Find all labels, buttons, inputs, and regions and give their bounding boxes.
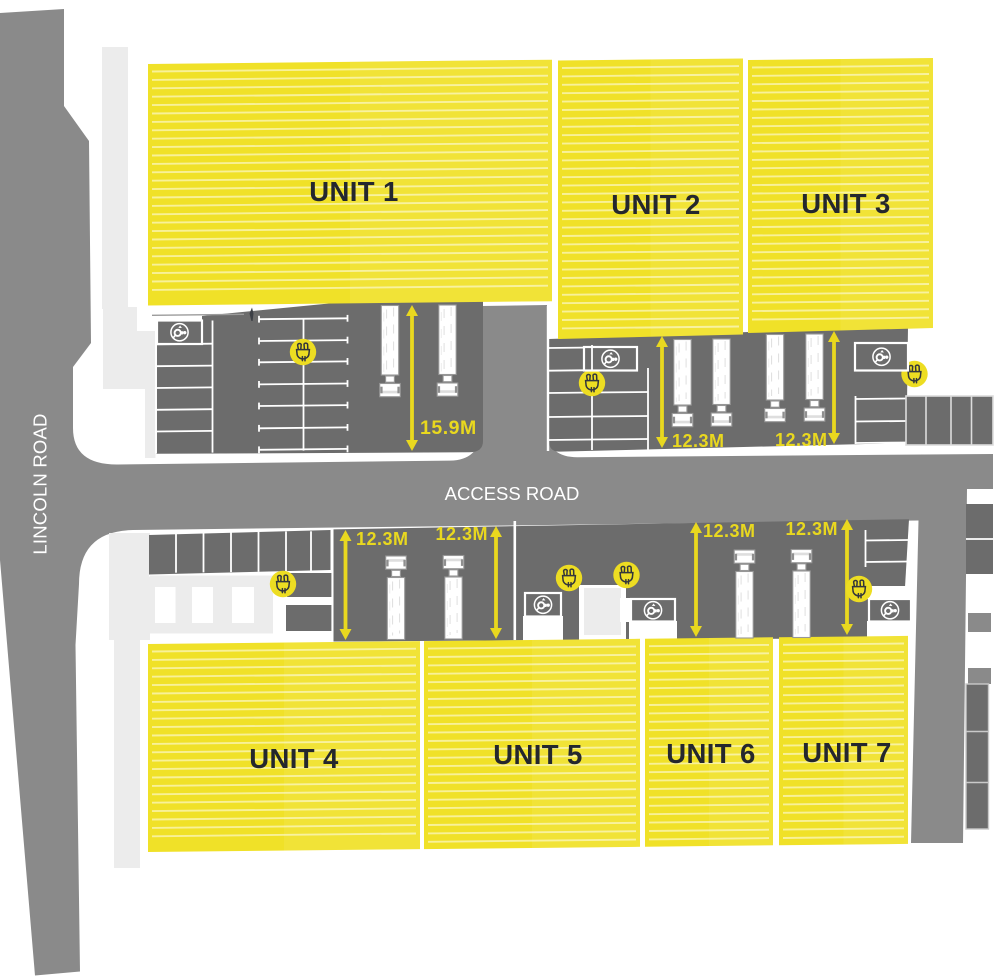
svg-text:UNIT 4: UNIT 4 [249,743,339,774]
svg-text:12.3M: 12.3M [435,524,488,544]
svg-text:ACCESS ROAD: ACCESS ROAD [445,483,580,504]
svg-text:UNIT 6: UNIT 6 [666,738,756,769]
svg-text:UNIT 7: UNIT 7 [802,737,892,768]
svg-text:LINCOLN ROAD: LINCOLN ROAD [30,413,51,554]
svg-text:12.3M: 12.3M [672,431,725,451]
svg-text:UNIT 5: UNIT 5 [493,739,583,770]
svg-text:12.3M: 12.3M [703,521,756,541]
svg-text:UNIT 3: UNIT 3 [801,188,891,219]
svg-text:15.9M: 15.9M [420,417,477,439]
svg-text:12.3M: 12.3M [775,430,828,450]
svg-text:12.3M: 12.3M [785,519,838,539]
svg-text:12.3M: 12.3M [356,529,409,549]
svg-text:UNIT 2: UNIT 2 [611,189,701,220]
svg-text:UNIT 1: UNIT 1 [309,176,399,207]
